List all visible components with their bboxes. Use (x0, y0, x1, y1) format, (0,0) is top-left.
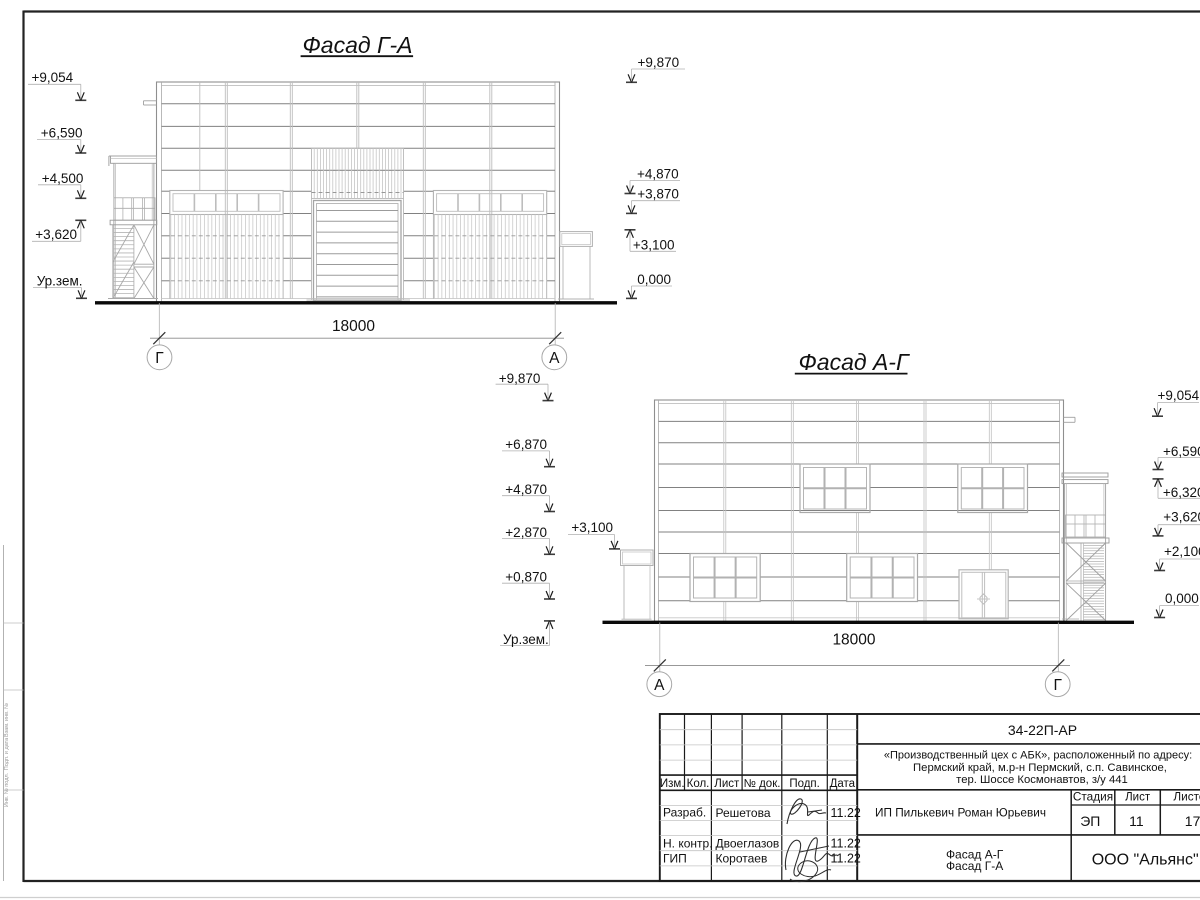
svg-text:Изм.: Изм. (660, 778, 685, 790)
svg-text:34-22П-АР: 34-22П-АР (1008, 722, 1077, 738)
svg-text:Н. контр.: Н. контр. (663, 837, 713, 851)
svg-text:Дата: Дата (830, 778, 856, 790)
svg-text:+9,870: +9,870 (638, 55, 680, 70)
svg-text:+0,870: +0,870 (505, 570, 547, 585)
svg-text:0,000: 0,000 (637, 272, 671, 287)
svg-text:+9,054: +9,054 (1158, 388, 1200, 403)
svg-text:Подп. и дата: Подп. и дата (4, 737, 10, 770)
svg-text:18000: 18000 (332, 318, 375, 335)
svg-text:ГИП: ГИП (663, 852, 687, 866)
svg-text:0,000: 0,000 (1165, 591, 1199, 606)
svg-text:Решетова: Решетова (716, 806, 771, 820)
svg-text:Инв. № подл.: Инв. № подл. (4, 772, 10, 807)
svg-text:«Производственный цех с АБК»,: «Производственный цех с АБК», расположен… (884, 749, 1192, 761)
svg-text:+3,870: +3,870 (637, 187, 679, 202)
svg-text:№ док.: № док. (744, 778, 781, 790)
svg-text:Взам. инв. №: Взам. инв. № (4, 703, 10, 737)
svg-text:Фасад А-Г: Фасад А-Г (799, 349, 910, 375)
svg-text:Ур.зем.: Ур.зем. (503, 632, 549, 647)
svg-text:Г: Г (155, 350, 164, 367)
svg-text:+3,620: +3,620 (35, 227, 77, 242)
svg-text:11.22: 11.22 (831, 852, 861, 866)
svg-text:Фасад Г-А: Фасад Г-А (946, 859, 1003, 873)
svg-text:11: 11 (1129, 813, 1144, 829)
svg-text:Г: Г (1053, 677, 1062, 694)
svg-text:Пермский край, м.р-н Пермский,: Пермский край, м.р-н Пермский, с.п. Сави… (913, 762, 1167, 774)
svg-text:Кол.: Кол. (687, 778, 710, 790)
svg-text:Листов: Листов (1173, 790, 1200, 804)
svg-text:тер. Шоссе Космонавтов, з/у 44: тер. Шоссе Космонавтов, з/у 441 (956, 774, 1128, 786)
svg-text:+6,590: +6,590 (41, 125, 83, 140)
svg-text:Двоеглазов: Двоеглазов (716, 837, 780, 851)
svg-text:11.22: 11.22 (831, 837, 861, 851)
svg-text:+6,590: +6,590 (1163, 444, 1200, 459)
svg-text:+3,620: +3,620 (1163, 510, 1200, 525)
svg-text:Фасад Г-А: Фасад Г-А (303, 32, 413, 58)
svg-text:18000: 18000 (832, 632, 875, 649)
svg-text:ЭП: ЭП (1080, 813, 1100, 829)
svg-text:11.22: 11.22 (831, 806, 861, 820)
svg-text:Ур.зем.: Ур.зем. (37, 274, 83, 289)
svg-text:Лист: Лист (1125, 792, 1151, 804)
svg-text:+4,870: +4,870 (637, 167, 679, 182)
svg-text:+9,054: +9,054 (32, 70, 74, 85)
svg-text:А: А (549, 350, 560, 367)
svg-text:+3,100: +3,100 (571, 520, 613, 535)
svg-text:ООО "Альянс": ООО "Альянс" (1092, 851, 1199, 868)
svg-text:+9,870: +9,870 (499, 371, 541, 386)
svg-text:+4,870: +4,870 (505, 482, 547, 497)
svg-text:+2,100: +2,100 (1164, 544, 1200, 559)
svg-text:+3,100: +3,100 (633, 237, 675, 252)
svg-text:+2,870: +2,870 (505, 525, 547, 540)
svg-text:ИП Пилькевич Роман Юрьевич: ИП Пилькевич Роман Юрьевич (875, 806, 1046, 820)
svg-text:А: А (654, 677, 665, 694)
svg-text:17: 17 (1185, 813, 1200, 829)
svg-text:Стадия: Стадия (1073, 790, 1113, 804)
svg-text:Лист: Лист (714, 778, 740, 790)
svg-text:+6,870: +6,870 (505, 437, 547, 452)
svg-text:+4,500: +4,500 (42, 171, 84, 186)
svg-text:Разраб.: Разраб. (663, 806, 706, 820)
svg-text:Коротаев: Коротаев (716, 852, 768, 866)
svg-text:Подп.: Подп. (789, 778, 820, 790)
svg-text:+6,320: +6,320 (1163, 485, 1200, 500)
